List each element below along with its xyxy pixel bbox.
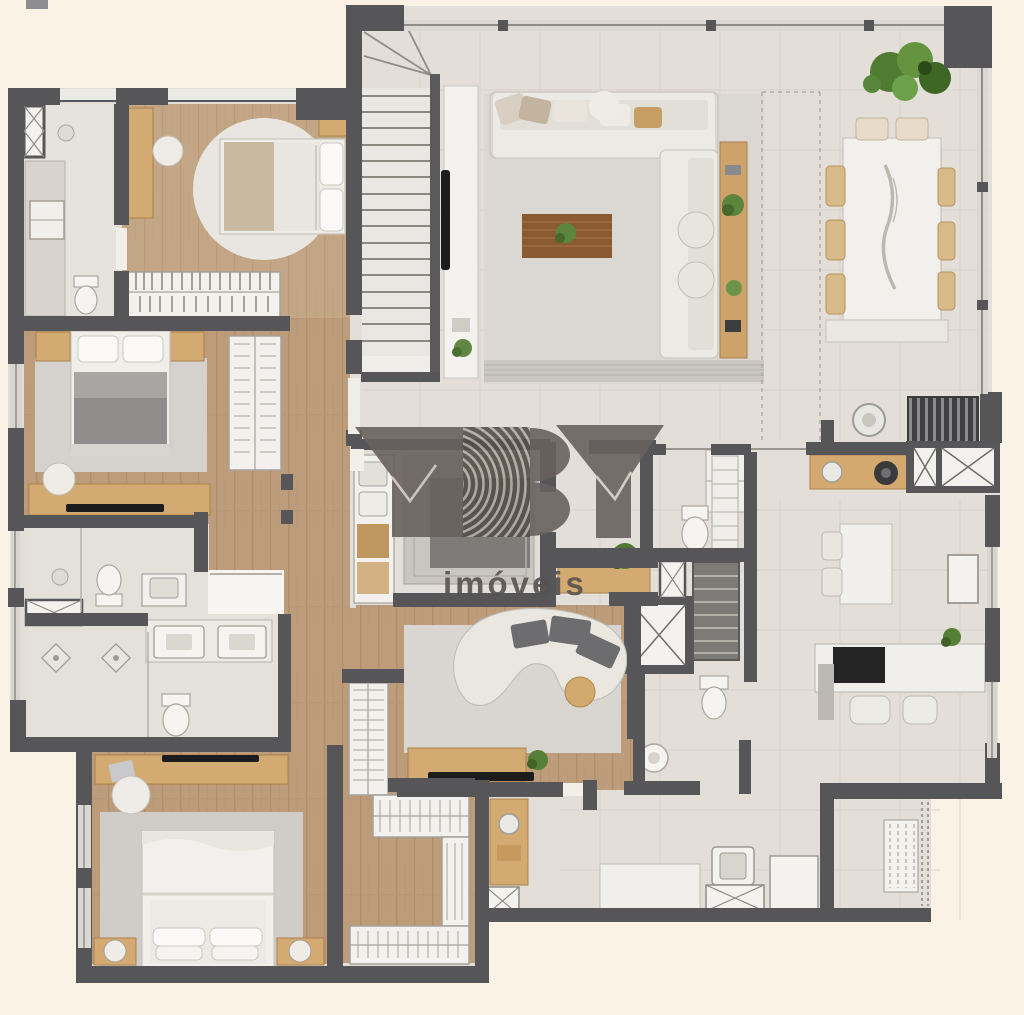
svg-text:imóveis: imóveis — [443, 565, 587, 602]
